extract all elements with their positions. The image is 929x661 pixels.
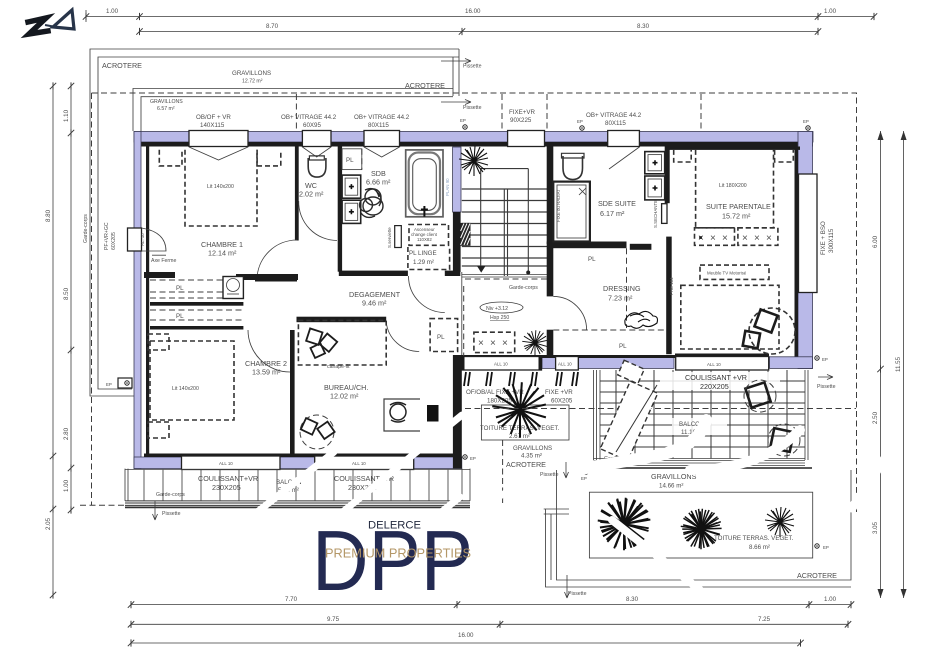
svg-text:PLAN 90: PLAN 90: [445, 178, 450, 196]
svg-text:OB+ VITRAGE 44.2: OB+ VITRAGE 44.2: [281, 114, 337, 121]
svg-text:2.02 m²: 2.02 m²: [299, 190, 324, 199]
svg-text:×: ×: [710, 233, 716, 244]
svg-text:16.00: 16.00: [458, 632, 474, 639]
svg-text:ACROTERE: ACROTERE: [102, 61, 142, 70]
svg-text:PRE 184: PRE 184: [669, 277, 674, 295]
svg-text:SUITE PARENTALE: SUITE PARENTALE: [706, 202, 771, 211]
svg-text:6.57 m²: 6.57 m²: [157, 106, 175, 112]
svg-text:EP: EP: [803, 119, 809, 124]
svg-text:80X115: 80X115: [605, 120, 626, 127]
svg-text:230X205: 230X205: [212, 483, 241, 492]
svg-text:COULISSANT +VR: COULISSANT +VR: [685, 373, 747, 382]
svg-text:EP: EP: [460, 118, 466, 123]
svg-text:×: ×: [742, 233, 748, 244]
svg-text:1.00: 1.00: [63, 479, 70, 492]
svg-text:FIXE +VR: FIXE +VR: [545, 389, 573, 396]
svg-text:OB+ VITRAGE 44.2: OB+ VITRAGE 44.2: [586, 112, 642, 119]
svg-text:DPP: DPP: [312, 514, 473, 609]
svg-text:8.30: 8.30: [637, 23, 650, 30]
svg-text:Lit 180X200: Lit 180X200: [719, 183, 747, 189]
svg-text:PL: PL: [346, 157, 354, 164]
svg-text:GRAVILLONS: GRAVILLONS: [150, 99, 183, 105]
svg-text:EP: EP: [106, 382, 112, 387]
svg-text:×: ×: [722, 233, 728, 244]
svg-text:EP: EP: [577, 119, 583, 124]
svg-text:PL LINGE: PL LINGE: [409, 250, 437, 257]
svg-text:SDE SUITE: SDE SUITE: [598, 199, 636, 208]
svg-text:Pissette: Pissette: [162, 511, 181, 517]
svg-text:×: ×: [766, 233, 772, 244]
svg-text:FIXE ou RADIAT: FIXE ou RADIAT: [556, 189, 561, 222]
svg-text:12.14 m²: 12.14 m²: [208, 249, 237, 258]
svg-text:FIXE + BSO: FIXE + BSO: [820, 221, 827, 255]
svg-text:15.72 m²: 15.72 m²: [722, 212, 751, 221]
svg-text:DRESSING: DRESSING: [603, 284, 641, 293]
svg-text:1.00: 1.00: [106, 8, 119, 15]
svg-text:Pissette: Pissette: [463, 64, 482, 70]
svg-text:2.05: 2.05: [45, 517, 52, 530]
svg-text:Hsp 250: Hsp 250: [490, 315, 509, 321]
svg-text:9.75: 9.75: [327, 616, 340, 623]
svg-text:300X115: 300X115: [828, 228, 835, 253]
svg-text:ALL 10: ALL 10: [219, 461, 233, 466]
svg-text:60X205: 60X205: [111, 232, 117, 250]
svg-text:1.10: 1.10: [63, 109, 70, 122]
svg-text:GRAVILLONS: GRAVILLONS: [513, 445, 552, 452]
svg-text:8.80: 8.80: [45, 209, 52, 222]
svg-text:PL: PL: [588, 256, 596, 263]
svg-text:EP: EP: [823, 545, 829, 550]
svg-text:6.00: 6.00: [872, 235, 879, 248]
svg-text:80X115: 80X115: [368, 122, 389, 129]
svg-text:ALL 10: ALL 10: [494, 362, 508, 367]
svg-text:Pissette: Pissette: [568, 591, 587, 597]
svg-text:12.72 m²: 12.72 m²: [242, 79, 263, 85]
svg-text:S.serviette: S.serviette: [387, 227, 392, 248]
svg-text:7.25: 7.25: [758, 616, 771, 623]
svg-text:×: ×: [478, 338, 484, 349]
svg-text:1.29 m²: 1.29 m²: [413, 259, 434, 266]
svg-text:ALL 10: ALL 10: [707, 362, 721, 367]
svg-text:Lit 140x200: Lit 140x200: [207, 184, 234, 190]
svg-text:60X205: 60X205: [551, 398, 573, 405]
svg-text:11.55: 11.55: [895, 356, 902, 372]
svg-text:PL: PL: [619, 343, 627, 350]
svg-text:GRAVILLONS: GRAVILLONS: [232, 70, 271, 77]
svg-text:16.00: 16.00: [465, 8, 481, 15]
svg-text:1.00: 1.00: [824, 8, 837, 15]
svg-text:PREMIUM PROPERTIES: PREMIUM PROPERTIES: [325, 547, 471, 561]
svg-text:×: ×: [490, 338, 496, 349]
svg-text:×: ×: [754, 233, 760, 244]
svg-text:12.02 m²: 12.02 m²: [330, 392, 359, 401]
svg-text:Pissette: Pissette: [540, 472, 559, 478]
svg-text:S.SECHANTE: S.SECHANTE: [653, 200, 658, 228]
svg-text:PF+VR+GC: PF+VR+GC: [104, 222, 110, 250]
svg-text:Meuble TV Motorisé: Meuble TV Motorisé: [707, 271, 747, 276]
svg-text:FIXE+VR: FIXE+VR: [509, 109, 535, 116]
svg-text:PL: PL: [176, 313, 184, 320]
svg-text:TOITURE TERRAS. VEGET.: TOITURE TERRAS. VEGET.: [714, 535, 793, 542]
svg-text:PL: PL: [437, 334, 445, 341]
svg-text:EP: EP: [822, 357, 828, 362]
svg-text:EP: EP: [470, 456, 476, 461]
svg-text:7.70: 7.70: [285, 596, 298, 603]
svg-text:220X205: 220X205: [700, 382, 729, 391]
svg-text:6.66 m²: 6.66 m²: [366, 178, 391, 187]
svg-text:AL. 10: AL. 10: [140, 233, 145, 246]
svg-text:Garde-corps: Garde-corps: [83, 214, 89, 243]
svg-text:14.66 m²: 14.66 m²: [659, 483, 683, 490]
svg-text:Niv +3.12: Niv +3.12: [486, 306, 508, 312]
svg-text:×: ×: [502, 338, 508, 349]
svg-text:OB/OF + VR: OB/OF + VR: [196, 114, 231, 121]
svg-text:ALL 10: ALL 10: [352, 461, 366, 466]
svg-text:Pissette: Pissette: [817, 384, 836, 390]
svg-text:canapé-lit: canapé-lit: [327, 364, 350, 370]
svg-text:PL: PL: [176, 285, 184, 292]
svg-text:110X82: 110X82: [417, 237, 432, 242]
svg-text:6.17 m²: 6.17 m²: [600, 209, 625, 218]
svg-text:3.05: 3.05: [872, 521, 879, 534]
svg-text:ACROTERE: ACROTERE: [797, 571, 837, 580]
svg-text:ACROTERE: ACROTERE: [506, 460, 546, 469]
svg-text:13.59 m²: 13.59 m²: [252, 368, 281, 377]
svg-text:8.70: 8.70: [266, 23, 279, 30]
svg-text:OB+ VITRAGE 44.2: OB+ VITRAGE 44.2: [354, 114, 410, 121]
svg-text:1.00: 1.00: [824, 596, 837, 603]
svg-text:Axe Ferme: Axe Ferme: [151, 258, 176, 264]
svg-text:COULISSANT+VR: COULISSANT+VR: [198, 474, 258, 483]
svg-text:8.50: 8.50: [63, 287, 70, 300]
svg-text:8.30: 8.30: [626, 596, 639, 603]
svg-text:60X95: 60X95: [303, 122, 321, 129]
svg-text:Garde-corps: Garde-corps: [509, 285, 538, 291]
svg-text:EP: EP: [581, 476, 587, 481]
svg-text:140X115: 140X115: [200, 122, 225, 129]
svg-text:Garde-corps: Garde-corps: [156, 492, 185, 498]
svg-text:Lit 140x200: Lit 140x200: [172, 386, 199, 392]
svg-text:Pissette: Pissette: [463, 105, 482, 111]
svg-text:7.23 m²: 7.23 m²: [608, 294, 633, 303]
svg-text:ALL 10: ALL 10: [558, 362, 572, 367]
svg-text:2.80: 2.80: [63, 427, 70, 440]
svg-text:90X225: 90X225: [510, 117, 532, 124]
svg-text:8.66 m²: 8.66 m²: [749, 544, 770, 551]
svg-text:2.50: 2.50: [872, 411, 879, 424]
svg-text:4.35 m²: 4.35 m²: [521, 453, 542, 460]
svg-text:9.46 m²: 9.46 m²: [362, 299, 387, 308]
